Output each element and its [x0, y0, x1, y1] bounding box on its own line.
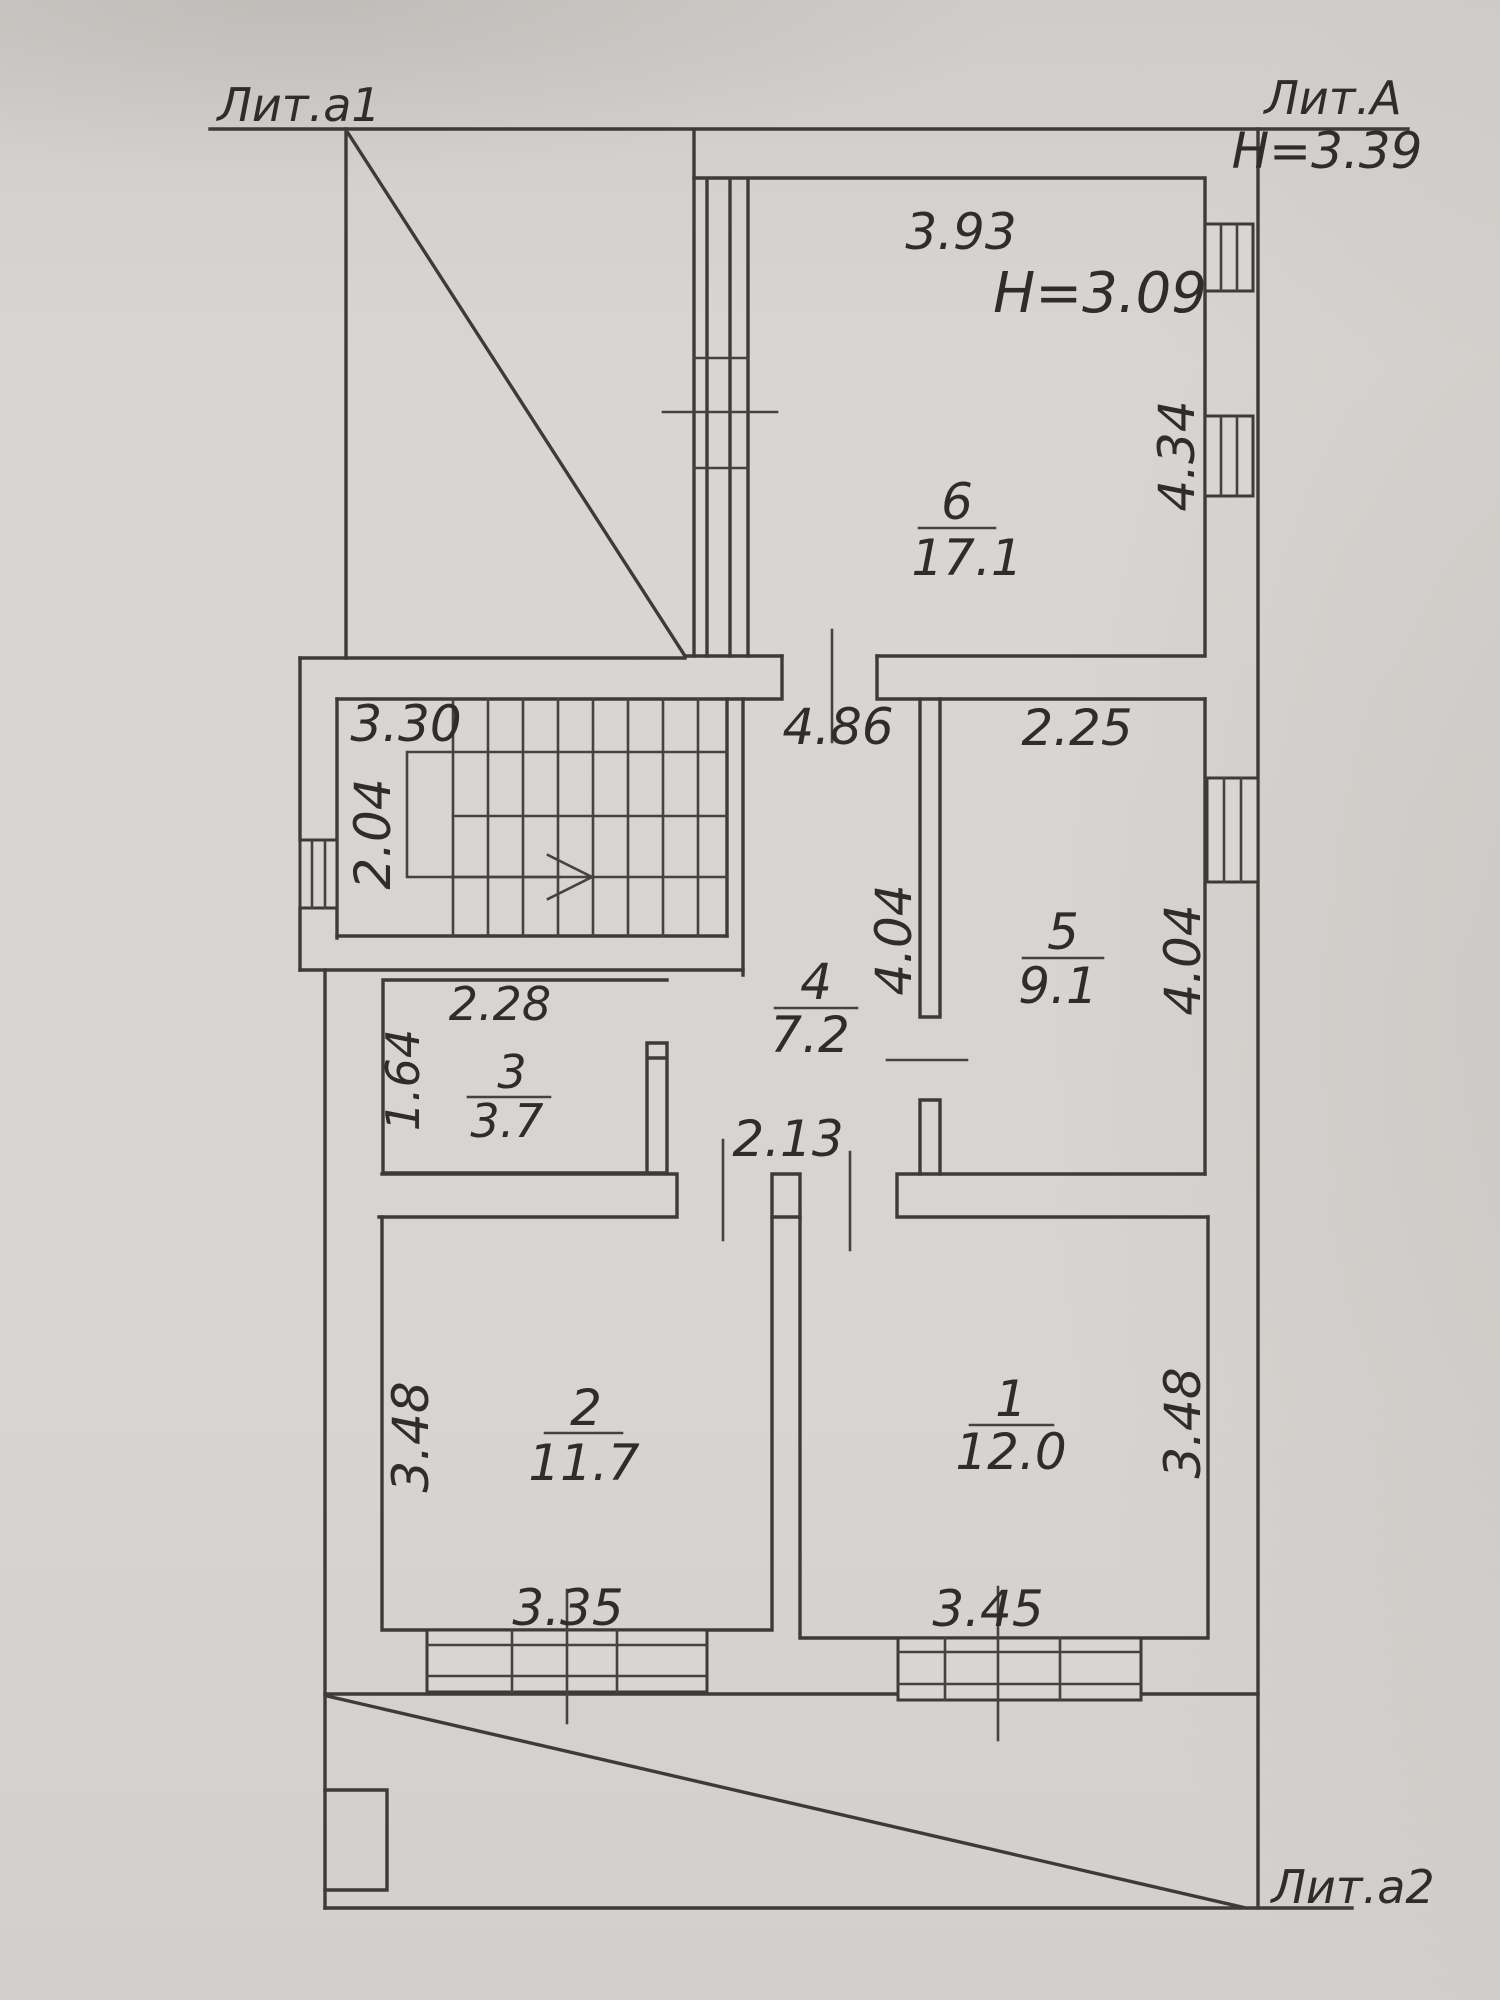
- room-3-dim-top: 2.28: [449, 977, 551, 1031]
- room-1-dim-right: 3.48: [1154, 1367, 1212, 1478]
- hall-4-dim-bottom: 2.13: [732, 1110, 843, 1168]
- room-1-dim-bottom: 3.45: [932, 1580, 1043, 1638]
- room-3-area: 3.7: [470, 1094, 543, 1148]
- hall-4-area: 7.2: [770, 1006, 850, 1064]
- floor-plan-scan: Лит.а1 Лит.А Н=3.39 Н=3.09 Лит.а2 3.93 4…: [0, 0, 1500, 2000]
- room-6-dim-top: 3.93: [905, 203, 1016, 261]
- room-2-dim-left: 3.48: [382, 1381, 440, 1492]
- lit-a1-label: Лит.а1: [215, 78, 380, 132]
- room-1-labels: 3.48 1 12.0 3.45: [932, 1367, 1212, 1638]
- room-3-number: 3: [497, 1045, 526, 1099]
- room-6-area: 17.1: [911, 529, 1022, 587]
- room-6-window-1: [1205, 224, 1253, 291]
- floor-plan-drawing: Лит.а1 Лит.А Н=3.39 Н=3.09 Лит.а2 3.93 4…: [0, 0, 1500, 2000]
- room-5-area: 9.1: [1018, 957, 1098, 1015]
- room-6-flue-wall: [694, 131, 748, 656]
- room-5-dim-top: 2.25: [1021, 699, 1132, 757]
- room-2-labels: 3.48 2 11.7 3.35: [382, 1379, 640, 1637]
- room-2-number: 2: [570, 1379, 602, 1437]
- room-6-flue-ticks: [663, 358, 777, 468]
- room-5-dim-right: 4.04: [1154, 904, 1212, 1015]
- room-2-area: 11.7: [528, 1434, 640, 1492]
- stairs-dim-left: 2.04: [344, 778, 402, 889]
- lit-a2-label: Лит.а2: [1269, 1860, 1434, 1914]
- windows: [300, 224, 1258, 1740]
- room-5-labels: 2.25 4.04 5 9.1: [1018, 699, 1212, 1016]
- stair-treads: [453, 699, 698, 936]
- middle-lower-band-walls: [379, 1174, 1208, 1217]
- veranda-a2-walls: [325, 1696, 1352, 1908]
- room-3-labels: 2.28 1.64 3 3.7: [376, 977, 551, 1148]
- room-5-number: 5: [1047, 903, 1079, 961]
- room-6-window-2: [1205, 416, 1253, 496]
- room-6-dim-right: 4.34: [1148, 400, 1206, 511]
- hall-right-wall: [920, 699, 940, 1174]
- hall-top-wall: [337, 656, 1205, 699]
- lit-a-label: Лит.А: [1262, 71, 1401, 125]
- hall-4-number: 4: [800, 953, 832, 1011]
- left-outer-wall: [300, 658, 337, 970]
- stair-bottom-walls: [300, 936, 743, 970]
- height-room6-label: Н=3.09: [993, 261, 1207, 326]
- stairs-left-window: [300, 840, 337, 908]
- room-1-area: 12.0: [955, 1423, 1066, 1481]
- room-1-number: 1: [995, 1370, 1027, 1428]
- veranda-a1-walls: [346, 129, 685, 658]
- stair-stringer: [407, 752, 727, 877]
- stairs-dim-top: 3.30: [350, 695, 461, 753]
- room-3-dim-left: 1.64: [376, 1029, 430, 1131]
- room-2-dim-bottom: 3.35: [512, 1579, 623, 1637]
- stairs-labels: 3.30 2.04: [344, 695, 462, 890]
- room-5-window: [1207, 778, 1258, 882]
- rooms-1-2-walls: [382, 1217, 1208, 1638]
- hall-4-dim-left: 4.04: [865, 884, 923, 995]
- hall-4-dim-top: 4.86: [782, 698, 893, 756]
- stair-right-wall: [727, 699, 743, 975]
- hall-4-labels: 4.86 4.04 4 7.2 2.13: [732, 698, 923, 1168]
- room-1-window-band: [898, 1638, 1141, 1700]
- height-building-label: Н=3.39: [1232, 122, 1423, 180]
- room-6-number: 6: [941, 473, 973, 531]
